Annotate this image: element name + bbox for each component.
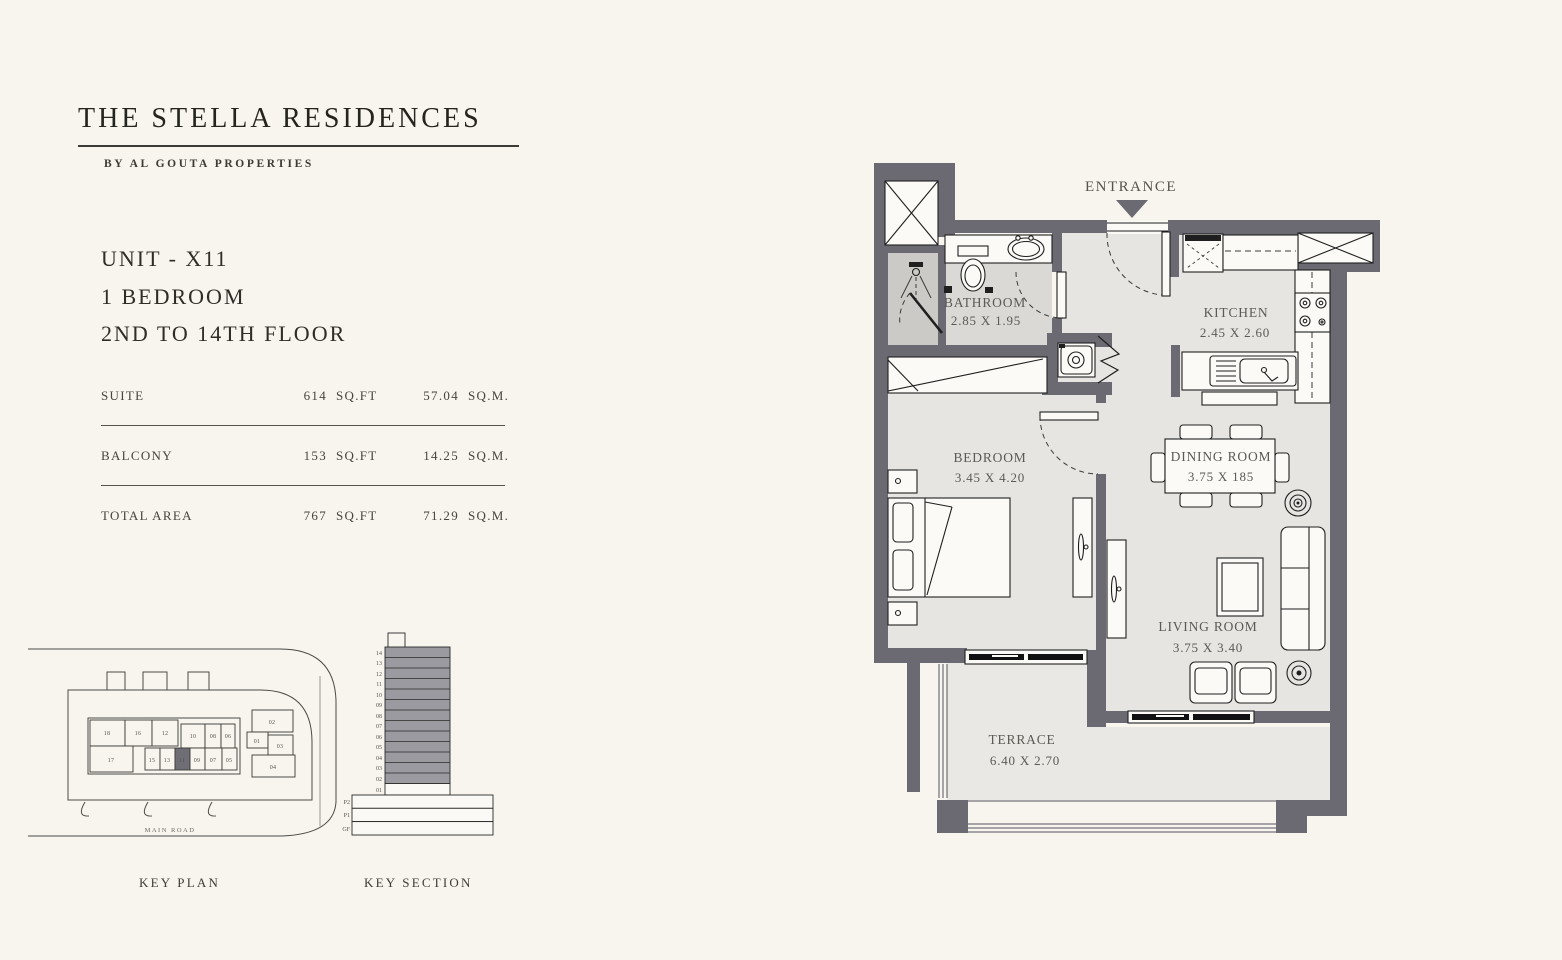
- svg-text:3.45 X 4.20: 3.45 X 4.20: [955, 470, 1025, 485]
- tv-console: [1107, 540, 1126, 638]
- svg-text:15: 15: [149, 758, 156, 764]
- chair: [1230, 493, 1262, 507]
- stove: [1295, 293, 1330, 332]
- sliding-window: [1128, 711, 1254, 723]
- svg-text:10: 10: [190, 734, 197, 740]
- svg-text:DINING ROOM: DINING ROOM: [1171, 449, 1272, 464]
- sqft-value: 614: [287, 388, 327, 404]
- counter-top: [1223, 235, 1298, 270]
- svg-text:02: 02: [376, 777, 382, 783]
- svg-text:GF: GF: [342, 827, 350, 833]
- sqm-unit: SQ.M.: [459, 448, 505, 464]
- sofa: [1281, 527, 1325, 650]
- svg-text:12: 12: [162, 731, 169, 737]
- svg-text:01: 01: [254, 739, 261, 745]
- entrance-label: ENTRANCE: [1085, 179, 1177, 195]
- svg-text:13: 13: [376, 661, 382, 667]
- key-plan: 18 16 12 10 08 06 17 15 13 11 09 07 05 0…: [28, 636, 348, 866]
- nightstand: [888, 470, 917, 493]
- sqft-value: 153: [287, 448, 327, 464]
- sqft-unit: SQ.FT: [327, 508, 407, 524]
- sqm-unit: SQ.M.: [459, 508, 505, 524]
- unit-type: 1 BEDROOM: [101, 278, 346, 316]
- svg-text:3.75 X 3.40: 3.75 X 3.40: [1173, 640, 1243, 655]
- bathroom-door-leaf: [1057, 272, 1066, 318]
- counter-end-panel: [1202, 392, 1277, 405]
- svg-text:BATHROOM: BATHROOM: [944, 295, 1026, 310]
- table-row-total: TOTAL AREA 767 SQ.FT 71.29 SQ.M.: [101, 486, 505, 546]
- svg-text:3.75 X 185: 3.75 X 185: [1188, 469, 1254, 484]
- shaft-box: [885, 181, 938, 245]
- svg-text:04: 04: [270, 765, 277, 771]
- shower-head-icon: [909, 262, 923, 267]
- svg-text:09: 09: [376, 703, 382, 709]
- main-road-label: MAIN ROAD: [145, 827, 196, 834]
- chair: [1275, 453, 1289, 482]
- svg-text:17: 17: [108, 758, 115, 764]
- svg-text:12: 12: [376, 672, 382, 678]
- svg-text:08: 08: [376, 714, 382, 720]
- svg-text:P2: P2: [344, 800, 350, 806]
- unit-number: UNIT - X11: [101, 240, 346, 278]
- svg-text:08: 08: [210, 734, 217, 740]
- page-title: THE STELLA RESIDENCES: [78, 103, 482, 135]
- key-section-caption: KEY SECTION: [364, 875, 473, 891]
- row-label: BALCONY: [101, 448, 287, 464]
- chair: [1230, 425, 1262, 439]
- area-table: SUITE 614 SQ.FT 57.04 SQ.M. BALCONY 153 …: [101, 366, 505, 546]
- sqft-unit: SQ.FT: [327, 448, 407, 464]
- key-plan-building: 18 16 12 10 08 06 17 15 13 11 09 07 05 0…: [88, 710, 295, 777]
- key-plan-caption: KEY PLAN: [139, 875, 220, 891]
- sqft-unit: SQ.FT: [327, 388, 407, 404]
- sqm-value: 14.25: [407, 448, 459, 464]
- chair: [1151, 453, 1165, 482]
- svg-text:05: 05: [226, 758, 233, 764]
- entrance-door-leaf: [1162, 232, 1170, 296]
- washing-machine: [1058, 343, 1095, 377]
- wardrobe: [888, 357, 1047, 393]
- svg-text:13: 13: [164, 758, 171, 764]
- highlighted-unit-number: 11: [179, 758, 185, 764]
- key-section: 14 13 12 11 10 09 08 07 06 05 04 03 02 0…: [330, 612, 510, 852]
- svg-text:02: 02: [269, 720, 276, 726]
- svg-text:16: 16: [135, 731, 142, 737]
- sqm-value: 71.29: [407, 508, 459, 524]
- svg-text:07: 07: [376, 724, 382, 730]
- svg-text:18: 18: [104, 731, 111, 737]
- sliding-window: [965, 650, 1087, 664]
- brochure-page: { "brand": { "title": "THE STELLA RESIDE…: [0, 0, 1562, 960]
- svg-text:03: 03: [277, 744, 284, 750]
- svg-text:07: 07: [210, 758, 217, 764]
- bedroom-door-leaf: [1040, 412, 1098, 420]
- page-subtitle: BY AL GOUTA PROPERTIES: [104, 158, 314, 170]
- unit-info: UNIT - X11 1 BEDROOM 2ND TO 14TH FLOOR: [101, 240, 346, 353]
- svg-text:BEDROOM: BEDROOM: [953, 450, 1026, 465]
- pillow: [893, 503, 913, 542]
- row-label: SUITE: [101, 388, 287, 404]
- svg-text:01: 01: [376, 788, 382, 794]
- svg-text:14: 14: [376, 651, 382, 657]
- coffee-table: [1217, 558, 1263, 616]
- chair: [1180, 425, 1212, 439]
- fixture: [944, 286, 952, 293]
- svg-text:06: 06: [376, 735, 382, 741]
- svg-text:06: 06: [225, 734, 232, 740]
- dining-table: [1165, 439, 1275, 493]
- title-underline: [78, 145, 519, 147]
- row-label: TOTAL AREA: [101, 508, 287, 524]
- chair: [1180, 493, 1212, 507]
- bed: [888, 498, 1010, 597]
- unit-floors: 2ND TO 14TH FLOOR: [101, 315, 346, 353]
- svg-text:09: 09: [194, 758, 201, 764]
- kitchen-sink: [1210, 356, 1296, 386]
- svg-text:2.85 X 1.95: 2.85 X 1.95: [951, 313, 1021, 328]
- svg-text:04: 04: [376, 756, 382, 762]
- highlighted-floors: [385, 647, 450, 784]
- entrance-arrow-icon: [1116, 200, 1148, 218]
- svg-text:2.45 X 2.60: 2.45 X 2.60: [1200, 325, 1270, 340]
- svg-text:10: 10: [376, 693, 382, 699]
- svg-text:LIVING ROOM: LIVING ROOM: [1158, 619, 1257, 634]
- svg-text:6.40 X 2.70: 6.40 X 2.70: [990, 753, 1060, 768]
- pillow: [893, 550, 913, 590]
- svg-text:11: 11: [376, 682, 382, 688]
- sqm-value: 57.04: [407, 388, 459, 404]
- fridge: [1183, 234, 1223, 272]
- floor-plan: ENTRANCE BATHROOM 2.85 X 1.95: [860, 150, 1400, 870]
- svg-text:TERRACE: TERRACE: [988, 732, 1055, 747]
- armchair: [1190, 662, 1232, 703]
- shaft-box: [1298, 233, 1373, 263]
- svg-text:P1: P1: [344, 813, 350, 819]
- table-row-suite: SUITE 614 SQ.FT 57.04 SQ.M.: [101, 366, 505, 426]
- armchair: [1235, 662, 1276, 703]
- sqft-value: 767: [287, 508, 327, 524]
- tv-console: [1073, 498, 1092, 597]
- table-row-balcony: BALCONY 153 SQ.FT 14.25 SQ.M.: [101, 426, 505, 486]
- svg-text:KITCHEN: KITCHEN: [1204, 305, 1269, 320]
- key-section-tower: [352, 633, 493, 835]
- sqm-unit: SQ.M.: [459, 388, 505, 404]
- svg-text:05: 05: [376, 745, 382, 751]
- svg-text:03: 03: [376, 766, 382, 772]
- fixture: [985, 287, 993, 293]
- nightstand: [888, 602, 917, 625]
